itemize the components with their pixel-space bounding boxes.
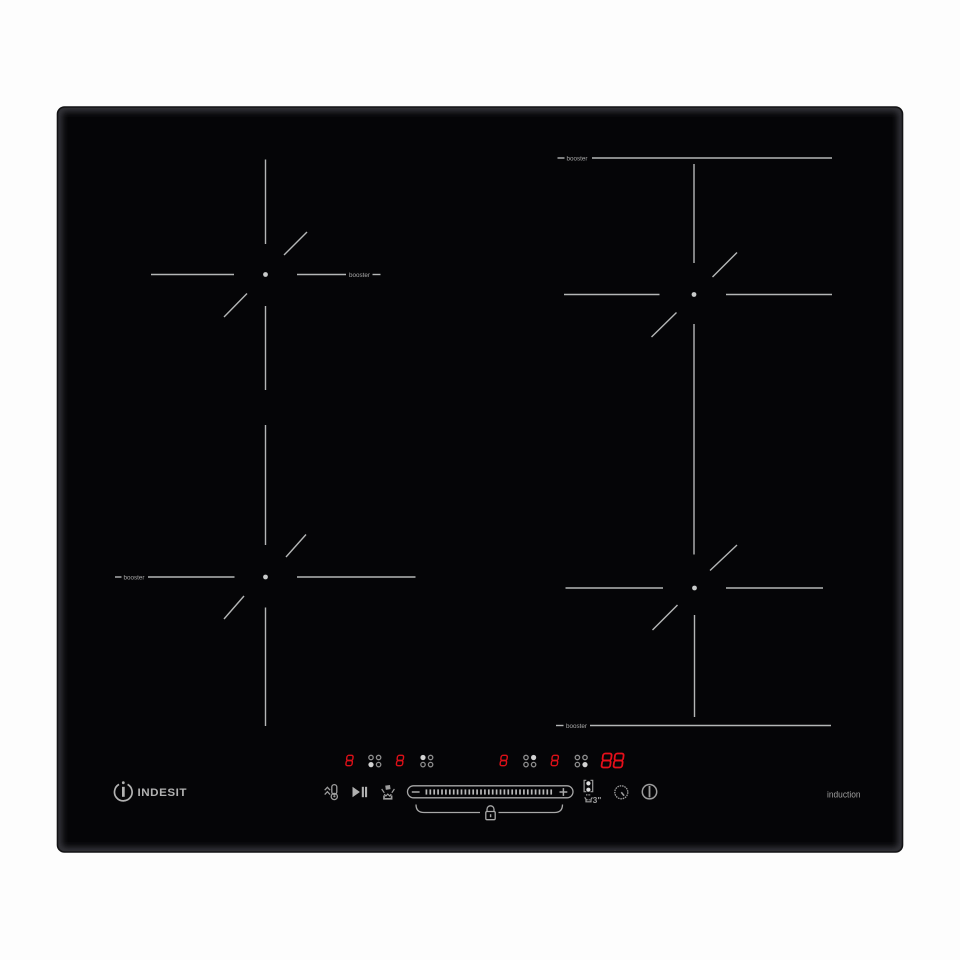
- svg-text:booster: booster: [566, 723, 588, 730]
- svg-text:INDESIT: INDESIT: [138, 787, 188, 799]
- svg-text:induction: induction: [827, 789, 861, 799]
- svg-text:booster: booster: [567, 155, 589, 162]
- svg-text:booster: booster: [124, 574, 146, 581]
- svg-text:3": 3": [593, 795, 602, 805]
- svg-text:booster: booster: [349, 272, 371, 279]
